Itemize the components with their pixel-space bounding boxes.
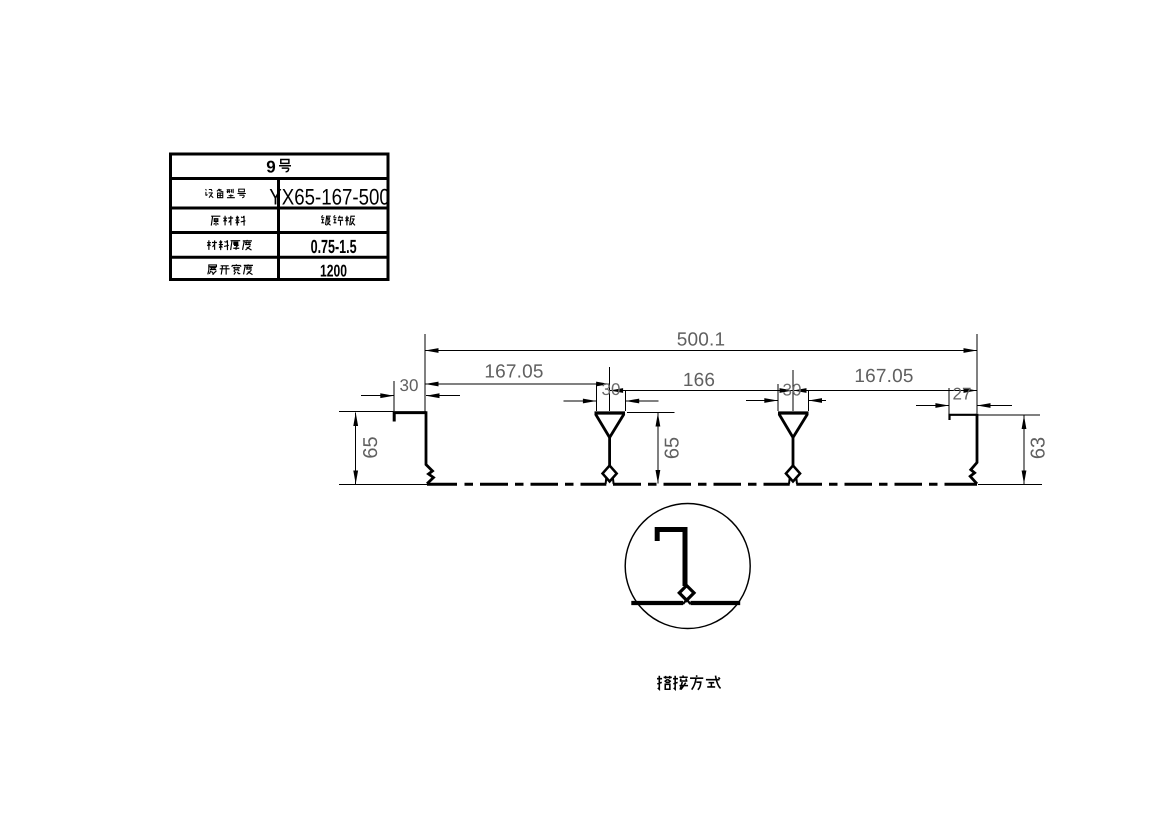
svg-text:30: 30: [400, 376, 419, 395]
svg-text:1200: 1200: [320, 262, 347, 281]
svg-text:500.1: 500.1: [677, 330, 726, 351]
svg-text:9: 9: [266, 158, 275, 177]
svg-text:27: 27: [953, 385, 972, 404]
svg-text:30: 30: [783, 381, 802, 400]
svg-text:167.05: 167.05: [484, 362, 543, 383]
svg-text:167.05: 167.05: [854, 366, 913, 387]
svg-text:30: 30: [602, 380, 621, 399]
svg-text:65: 65: [662, 437, 684, 459]
svg-text:63: 63: [1028, 437, 1050, 459]
svg-text:YX65-167-500: YX65-167-500: [269, 185, 389, 210]
svg-text:166: 166: [683, 370, 715, 391]
svg-text:0.75-1.5: 0.75-1.5: [311, 237, 357, 258]
svg-text:65: 65: [360, 436, 382, 458]
